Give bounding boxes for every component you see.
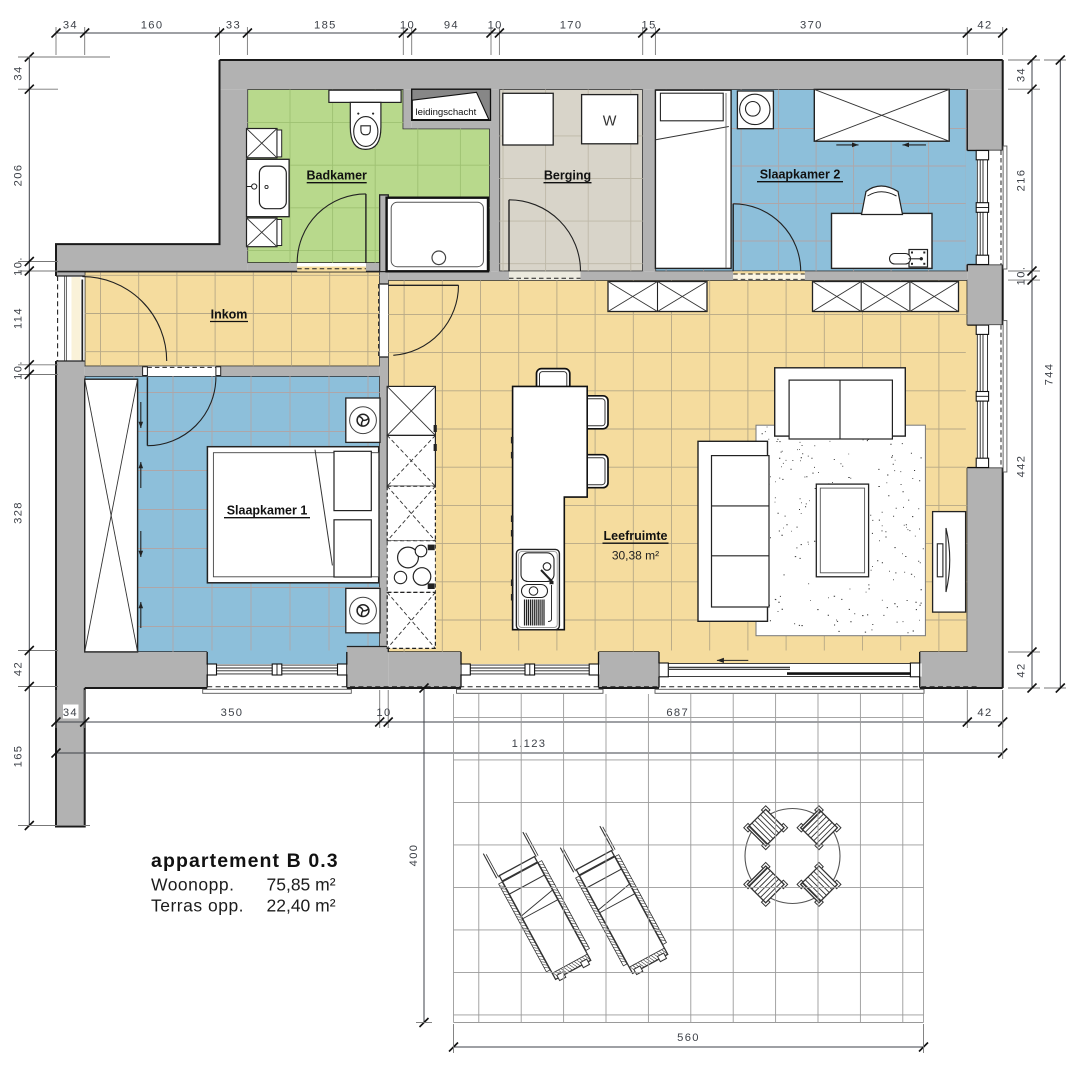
svg-text:442: 442 <box>1016 455 1028 478</box>
svg-text:42: 42 <box>1016 662 1028 677</box>
svg-text:328: 328 <box>13 501 25 524</box>
svg-text:75,85 m²: 75,85 m² <box>267 875 336 895</box>
svg-text:34: 34 <box>13 65 25 80</box>
svg-text:Slaapkamer 1: Slaapkamer 1 <box>227 504 308 518</box>
svg-text:370: 370 <box>800 19 823 31</box>
svg-text:Slaapkamer 2: Slaapkamer 2 <box>760 168 841 182</box>
svg-text:10: 10 <box>376 707 391 719</box>
svg-text:42: 42 <box>977 19 992 31</box>
svg-text:33: 33 <box>226 19 241 31</box>
svg-text:165: 165 <box>13 745 25 768</box>
svg-text:22,40 m²: 22,40 m² <box>267 896 336 916</box>
svg-text:10: 10 <box>488 19 503 31</box>
svg-text:15: 15 <box>642 19 657 31</box>
svg-text:10.: 10. <box>1016 266 1028 286</box>
svg-text:34: 34 <box>63 707 78 719</box>
svg-text:Woonopp.: Woonopp. <box>151 875 234 895</box>
svg-text:114: 114 <box>13 307 25 329</box>
svg-text:30,38 m²: 30,38 m² <box>612 549 659 563</box>
svg-text:216: 216 <box>1016 169 1028 192</box>
svg-text:560: 560 <box>677 1032 700 1044</box>
svg-text:leidingschacht: leidingschacht <box>416 107 477 118</box>
svg-text:W: W <box>603 114 617 130</box>
svg-text:206: 206 <box>13 164 25 187</box>
svg-text:400: 400 <box>408 844 420 867</box>
svg-text:185: 185 <box>314 19 337 31</box>
svg-text:Inkom: Inkom <box>211 307 248 321</box>
svg-text:Berging: Berging <box>544 169 591 183</box>
svg-text:10: 10 <box>400 19 415 31</box>
svg-text:Terras opp.: Terras opp. <box>151 896 244 916</box>
svg-text:1.123: 1.123 <box>512 738 547 750</box>
svg-text:Leefruimte: Leefruimte <box>604 529 668 543</box>
svg-text:160: 160 <box>141 19 164 31</box>
svg-text:10.: 10. <box>13 360 25 380</box>
svg-text:34: 34 <box>63 19 78 31</box>
svg-text:170: 170 <box>560 19 583 31</box>
svg-text:94: 94 <box>444 19 459 31</box>
svg-text:350: 350 <box>221 707 244 719</box>
svg-text:34: 34 <box>1016 67 1028 82</box>
svg-text:42: 42 <box>977 707 992 719</box>
svg-text:appartement B 0.3: appartement B 0.3 <box>151 850 339 872</box>
svg-text:42: 42 <box>13 661 25 676</box>
svg-text:10.: 10. <box>13 256 25 276</box>
svg-text:744: 744 <box>1044 363 1056 386</box>
svg-text:Badkamer: Badkamer <box>306 169 367 183</box>
